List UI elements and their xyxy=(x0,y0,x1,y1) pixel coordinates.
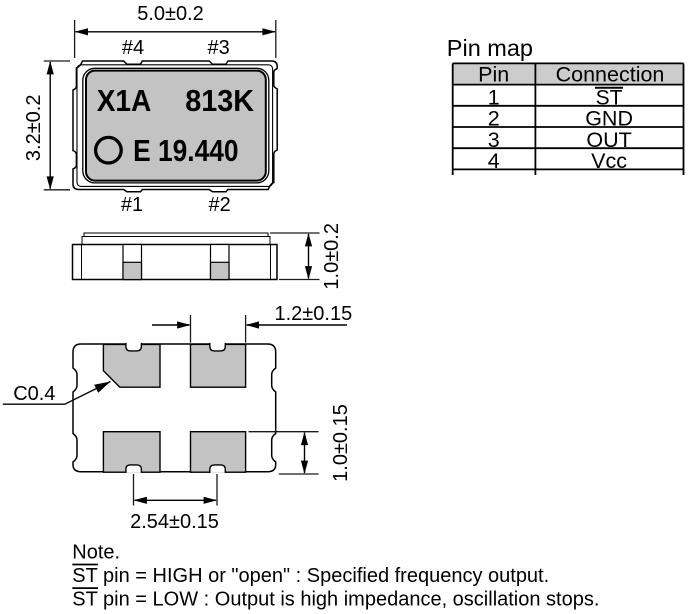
svg-text:E 19.440: E 19.440 xyxy=(133,133,238,168)
svg-text:#2: #2 xyxy=(208,194,230,216)
svg-text:5.0±0.2: 5.0±0.2 xyxy=(137,3,204,25)
svg-text:813K: 813K xyxy=(185,83,254,118)
svg-text:X1A: X1A xyxy=(97,83,152,118)
svg-text:Note.: Note. xyxy=(72,542,120,564)
svg-text:1.0±0.2: 1.0±0.2 xyxy=(321,223,343,290)
svg-text:Pin: Pin xyxy=(478,62,509,86)
svg-text:ST pin = LOW : Output is high: ST pin = LOW : Output is high impedance,… xyxy=(72,589,599,611)
svg-text:1.2±0.15: 1.2±0.15 xyxy=(275,303,353,325)
svg-text:Connection: Connection xyxy=(556,62,665,86)
svg-text:C0.4: C0.4 xyxy=(13,383,55,405)
svg-text:#1: #1 xyxy=(121,194,143,216)
svg-text:2.54±0.15: 2.54±0.15 xyxy=(130,511,219,533)
svg-text:3.2±0.2: 3.2±0.2 xyxy=(23,95,45,162)
svg-text:Pin map: Pin map xyxy=(447,35,533,61)
svg-text:ST pin = HIGH or "open" : Spec: ST pin = HIGH or "open" : Specified freq… xyxy=(72,565,549,587)
svg-text:1.0±0.15: 1.0±0.15 xyxy=(330,404,352,482)
svg-text:4: 4 xyxy=(488,149,500,173)
svg-text:#4: #4 xyxy=(122,37,144,59)
svg-text:Vcc: Vcc xyxy=(591,149,627,173)
svg-text:#3: #3 xyxy=(207,37,229,59)
